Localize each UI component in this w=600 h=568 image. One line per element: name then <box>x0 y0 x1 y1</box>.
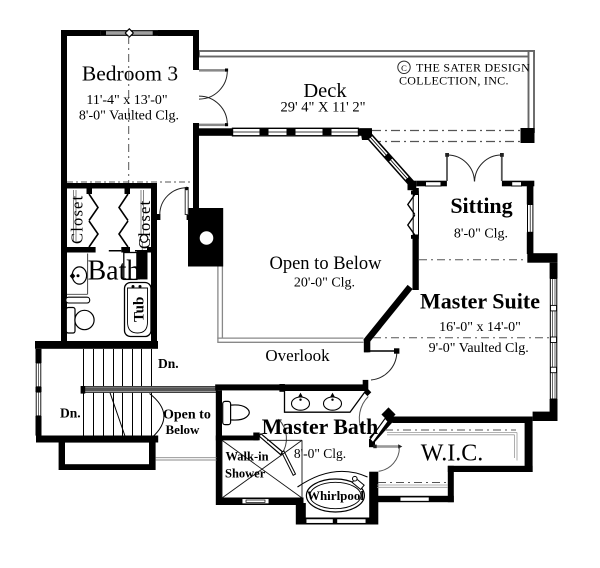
svg-text:29' 4" X 11' 2": 29' 4" X 11' 2" <box>281 100 366 116</box>
svg-text:C: C <box>401 63 407 73</box>
svg-text:W.I.C.: W.I.C. <box>421 441 483 467</box>
svg-text:Bath: Bath <box>88 256 141 287</box>
svg-text:Whirlpool: Whirlpool <box>307 488 364 503</box>
svg-text:Dn.: Dn. <box>158 356 179 371</box>
svg-text:Below: Below <box>166 422 201 437</box>
svg-text:8'-0" Vaulted Clg.: 8'-0" Vaulted Clg. <box>79 109 179 124</box>
svg-text:Overlook: Overlook <box>265 346 330 365</box>
svg-text:Sitting: Sitting <box>450 193 512 218</box>
svg-text:9'-0" Vaulted Clg.: 9'-0" Vaulted Clg. <box>429 341 529 356</box>
svg-text:Walk-in: Walk-in <box>226 450 269 464</box>
svg-text:Master Suite: Master Suite <box>420 289 540 314</box>
svg-text:Closet: Closet <box>135 200 154 249</box>
svg-text:Closet: Closet <box>68 195 87 244</box>
svg-text:Dn.: Dn. <box>60 406 81 421</box>
svg-text:16'-0" x 14'-0": 16'-0" x 14'-0" <box>439 320 521 335</box>
svg-text:20'-0" Clg.: 20'-0" Clg. <box>294 275 355 290</box>
svg-text:COLLECTION, INC.: COLLECTION, INC. <box>399 74 509 88</box>
svg-text:11'-4" x 13'-0": 11'-4" x 13'-0" <box>86 93 167 108</box>
svg-text:THE SATER DESIGN: THE SATER DESIGN <box>416 61 530 75</box>
svg-text:Shower: Shower <box>225 467 266 481</box>
svg-text:Tub: Tub <box>132 297 148 322</box>
svg-text:Open to Below: Open to Below <box>269 254 382 274</box>
svg-text:Master Bath: Master Bath <box>262 415 378 439</box>
svg-text:Open to: Open to <box>163 408 211 423</box>
svg-text:Bedroom 3: Bedroom 3 <box>82 62 178 86</box>
svg-text:8'-0" Clg.: 8'-0" Clg. <box>454 227 508 242</box>
svg-text:8'-0" Clg.: 8'-0" Clg. <box>294 446 346 461</box>
